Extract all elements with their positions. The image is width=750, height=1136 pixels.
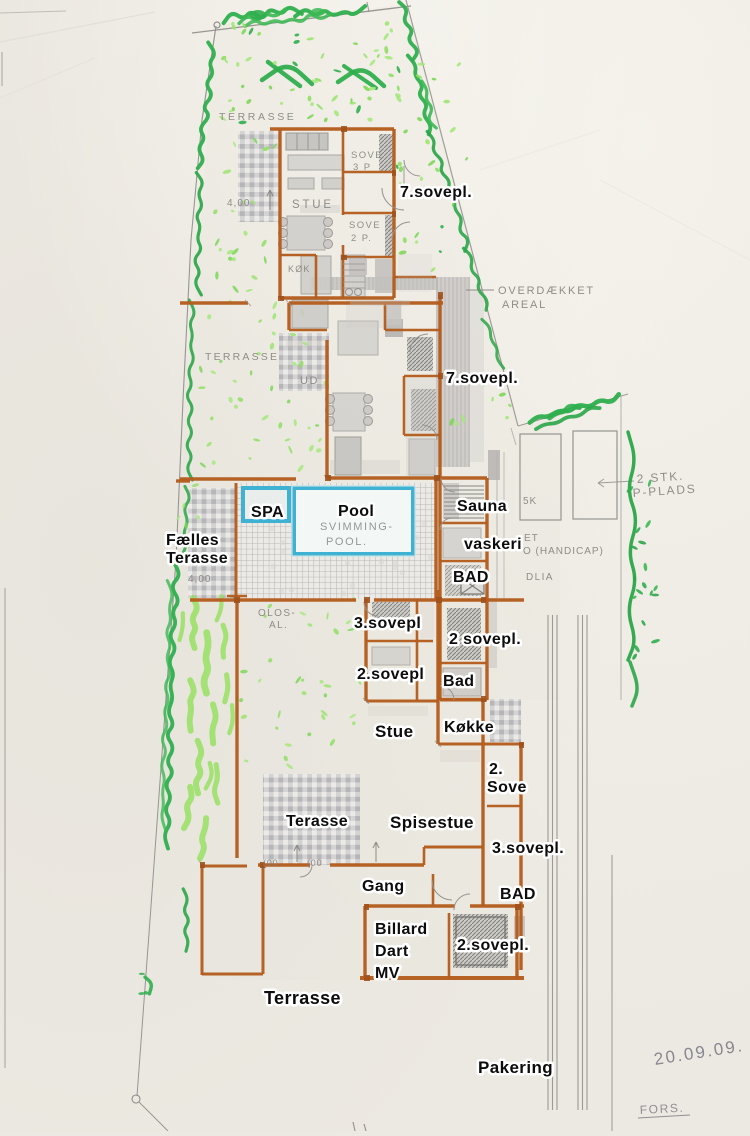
svg-text:4,00: 4,00 [227, 198, 250, 209]
svg-text:KØK: KØK [288, 264, 311, 274]
svg-text:BAD: BAD [500, 886, 536, 903]
svg-text:3 P: 3 P [353, 162, 371, 173]
svg-text:AL.: AL. [269, 620, 288, 631]
svg-text:2 sovepl.: 2 sovepl. [449, 631, 521, 648]
svg-text:2.sovepl: 2.sovepl [357, 666, 424, 683]
svg-text:SVIMMING-: SVIMMING- [320, 521, 394, 533]
svg-text:5K: 5K [523, 496, 537, 507]
svg-text:FORS.: FORS. [639, 1101, 684, 1117]
svg-text:UD: UD [300, 375, 319, 387]
svg-text:ET: ET [524, 533, 539, 544]
svg-text:SOVE: SOVE [349, 220, 381, 231]
svg-text:(00: (00 [263, 858, 278, 868]
svg-text:Dart: Dart [375, 943, 409, 960]
svg-text:Fælles: Fælles [166, 532, 219, 549]
svg-text:Pool: Pool [338, 503, 374, 520]
svg-text:MV: MV [375, 965, 400, 982]
svg-text:OVERDÆKKET: OVERDÆKKET [498, 285, 595, 297]
svg-text:Billard: Billard [375, 921, 428, 938]
svg-text:AREAL: AREAL [502, 299, 547, 311]
svg-text:Gang: Gang [362, 878, 405, 895]
svg-text:Spisestue: Spisestue [390, 813, 474, 832]
svg-text:3.sovepl.: 3.sovepl. [492, 840, 564, 857]
svg-text:Sove: Sove [487, 779, 527, 796]
svg-text:DLIA: DLIA [526, 572, 554, 583]
svg-text:SPA: SPA [251, 504, 284, 521]
svg-text:2.: 2. [489, 761, 503, 778]
svg-text:STUE: STUE [292, 199, 334, 211]
svg-text:Stue: Stue [375, 722, 413, 741]
svg-text:Bad: Bad [443, 673, 474, 690]
svg-text:BAD: BAD [453, 569, 489, 586]
svg-text:Pakering: Pakering [478, 1058, 553, 1077]
svg-text:7.sovepl.: 7.sovepl. [400, 184, 472, 201]
svg-text:Terasse: Terasse [166, 550, 228, 567]
svg-text:SOVE: SOVE [351, 150, 383, 161]
svg-text:2.sovepl.: 2.sovepl. [457, 937, 529, 954]
svg-text:vaskeri: vaskeri [464, 536, 522, 553]
svg-text:7.sovepl.: 7.sovepl. [446, 370, 518, 387]
svg-text:Sauna: Sauna [457, 498, 507, 515]
svg-text:2 P.: 2 P. [351, 233, 372, 244]
svg-text:OLOS-: OLOS- [258, 608, 296, 619]
svg-text:4,00: 4,00 [188, 574, 211, 585]
svg-text:Terrasse: Terrasse [264, 988, 341, 1008]
svg-text:POOL.: POOL. [326, 536, 368, 548]
svg-text:3.sovepl: 3.sovepl [354, 615, 421, 632]
svg-text:(00: (00 [307, 858, 322, 868]
svg-text:Terasse: Terasse [286, 813, 348, 830]
svg-text:TERRASSE: TERRASSE [219, 111, 296, 123]
svg-text:Køkke: Køkke [444, 719, 494, 736]
svg-text:TERRASSE: TERRASSE [205, 351, 279, 363]
svg-text:O (HANDICAP): O (HANDICAP) [523, 546, 604, 557]
